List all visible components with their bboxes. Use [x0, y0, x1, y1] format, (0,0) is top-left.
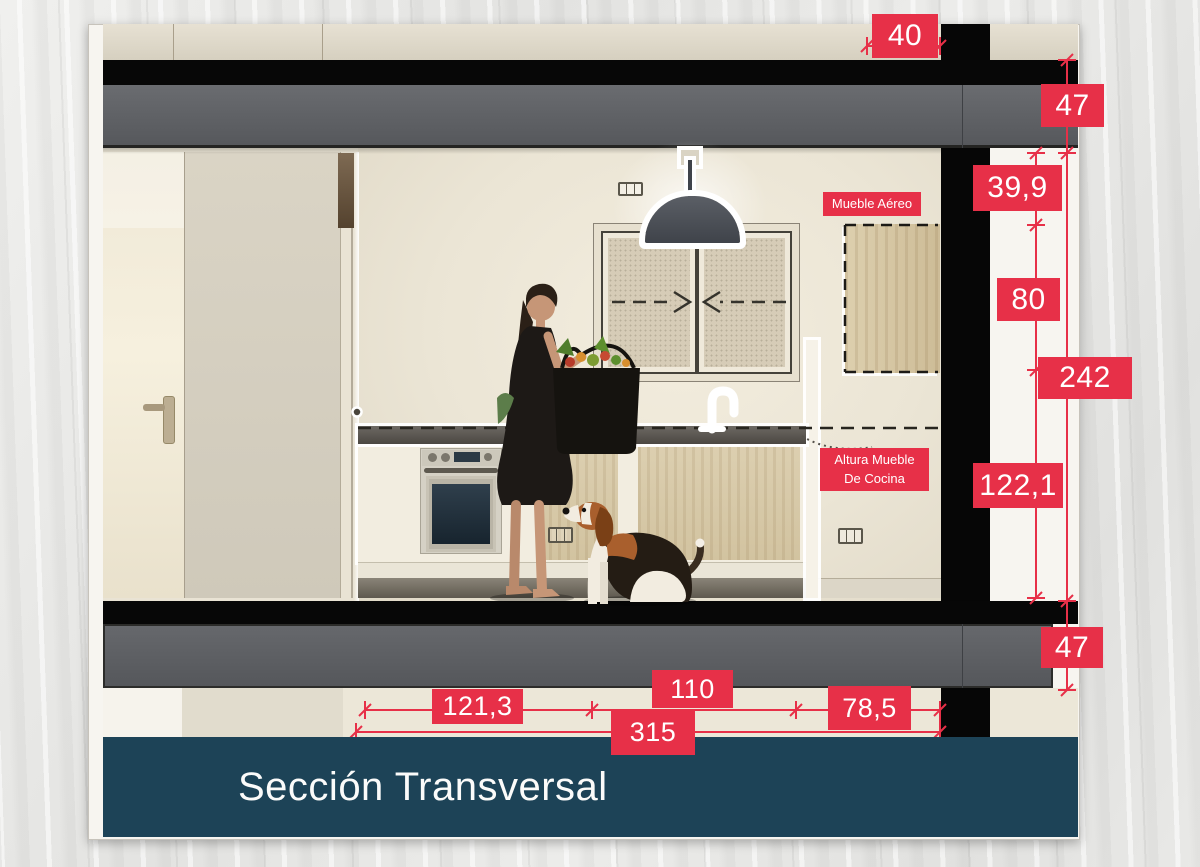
dimension-122-1: 122,1 [973, 463, 1063, 508]
window-glass-right [704, 238, 785, 367]
label-altura-mueble: Altura Mueble De Cocina [820, 448, 929, 491]
roof-finish-joint [322, 24, 323, 60]
dimension-80: 80 [997, 278, 1060, 321]
wall-cabinet-mueble-aereo [845, 224, 940, 373]
hallway-door-top [103, 152, 184, 228]
door-handle-plate [163, 396, 175, 444]
base-cabinet-wood-front [638, 446, 800, 560]
cabinet-plinth [358, 562, 806, 578]
roof-slab-gray [103, 85, 1078, 148]
dimension-39-9: 39,9 [973, 165, 1062, 211]
oven-display [454, 452, 480, 462]
bottom-strip-segment [103, 688, 182, 737]
door-frame-line [351, 228, 353, 598]
door-frame-wood [338, 153, 354, 228]
wall-outlet-right [838, 528, 863, 544]
oven-knob [428, 453, 437, 462]
oven-knob [484, 453, 492, 461]
dimension-110: 110 [652, 670, 733, 708]
dimension-roof-47: 47 [1041, 84, 1104, 127]
dimension-78-5: 78,5 [828, 686, 911, 730]
label-mueble-aereo: Mueble Aéreo [823, 192, 921, 216]
floor-slab-black [103, 601, 1078, 624]
ceiling-shadow [103, 148, 941, 154]
hallway-wall-panel [184, 152, 341, 598]
oven-door-glass [432, 484, 490, 544]
lamp-cord [688, 160, 692, 200]
title-bar: Sección Transversal [103, 737, 1078, 837]
baseboard [818, 578, 941, 598]
label-altura-line2: De Cocina [844, 470, 905, 489]
floor-slab-gray [103, 624, 1053, 688]
dimension-315: 315 [611, 710, 695, 755]
roof-finish-joint [173, 24, 174, 60]
countertop [358, 426, 806, 444]
dimension-242: 242 [1038, 357, 1132, 399]
dimension-floor-47: 47 [1041, 627, 1103, 668]
oven-knob [441, 453, 450, 462]
drawing-title: Sección Transversal [103, 765, 608, 810]
section-drawing-canvas: 40 47 39,9 80 242 122,1 47 121,3 110 78,… [0, 0, 1200, 867]
light-switch [618, 182, 643, 196]
floor-slab-joint [962, 624, 963, 688]
roof-slab-black [103, 60, 1078, 85]
roof-slab-joint [962, 85, 963, 148]
tall-unit-side [806, 340, 818, 598]
dimension-top-40: 40 [872, 14, 938, 58]
door-handle-lever [143, 404, 165, 411]
oven-handle [424, 468, 498, 473]
cabinet-shadow [358, 578, 806, 598]
bottom-strip-segment [182, 688, 343, 737]
label-altura-line1: Altura Mueble [834, 451, 914, 470]
window-glass-left [608, 238, 690, 367]
wall-outlet-middle [548, 527, 573, 543]
dimension-121-3: 121,3 [432, 689, 523, 724]
